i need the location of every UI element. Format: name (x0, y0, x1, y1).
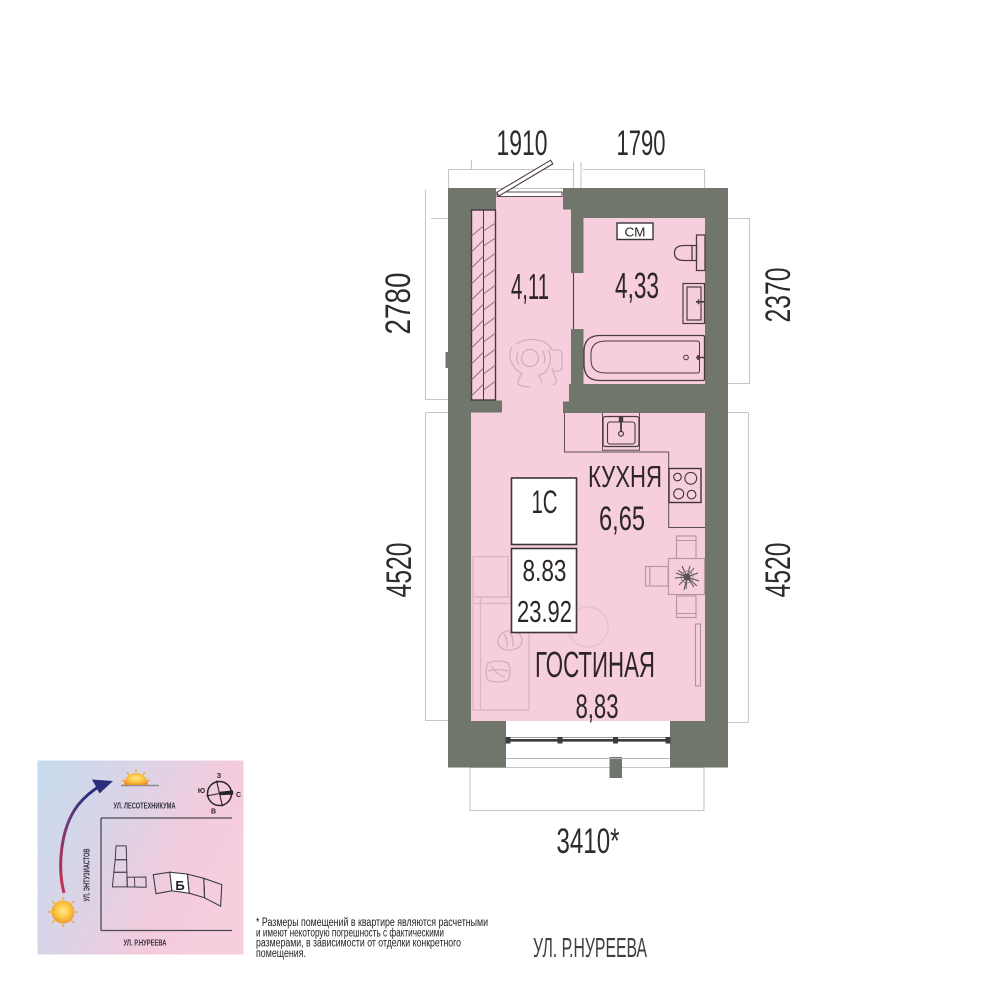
svg-text:КУХНЯ: КУХНЯ (588, 459, 662, 494)
svg-text:6,65: 6,65 (599, 500, 645, 538)
svg-text:СМ: СМ (625, 226, 646, 240)
svg-text:1С: 1С (532, 484, 558, 520)
svg-text:23.92: 23.92 (517, 594, 572, 629)
svg-text:З: З (217, 773, 222, 780)
svg-text:4,11: 4,11 (511, 266, 549, 307)
svg-text:С: С (236, 792, 241, 799)
svg-text:Ю: Ю (198, 788, 205, 795)
svg-text:8,83: 8,83 (576, 688, 619, 726)
svg-text:УЛ. Р.НУРЕЕВА: УЛ. Р.НУРЕЕВА (533, 932, 647, 963)
svg-text:Б: Б (175, 878, 184, 893)
svg-text:4520: 4520 (380, 543, 419, 598)
svg-text:помещения.: помещения. (256, 948, 306, 960)
svg-text:1910: 1910 (497, 124, 548, 163)
svg-text:УЛ. ЛЕСОТЕХНИКУМА: УЛ. ЛЕСОТЕХНИКУМА (114, 802, 176, 811)
svg-text:ГОСТИНАЯ: ГОСТИНАЯ (535, 644, 655, 685)
svg-text:В: В (211, 809, 216, 816)
svg-text:4520: 4520 (759, 543, 798, 598)
svg-text:4,33: 4,33 (615, 265, 659, 306)
svg-text:8.83: 8.83 (523, 553, 567, 588)
svg-text:УЛ. ЭНТУЗИАСТОВ: УЛ. ЭНТУЗИАСТОВ (83, 848, 92, 901)
svg-text:2780: 2780 (379, 273, 418, 335)
svg-text:УЛ. Р.НУРЕЕВА: УЛ. Р.НУРЕЕВА (124, 939, 167, 948)
svg-text:1790: 1790 (617, 124, 666, 163)
svg-text:2370: 2370 (759, 268, 798, 323)
svg-text:3410*: 3410* (557, 822, 620, 861)
